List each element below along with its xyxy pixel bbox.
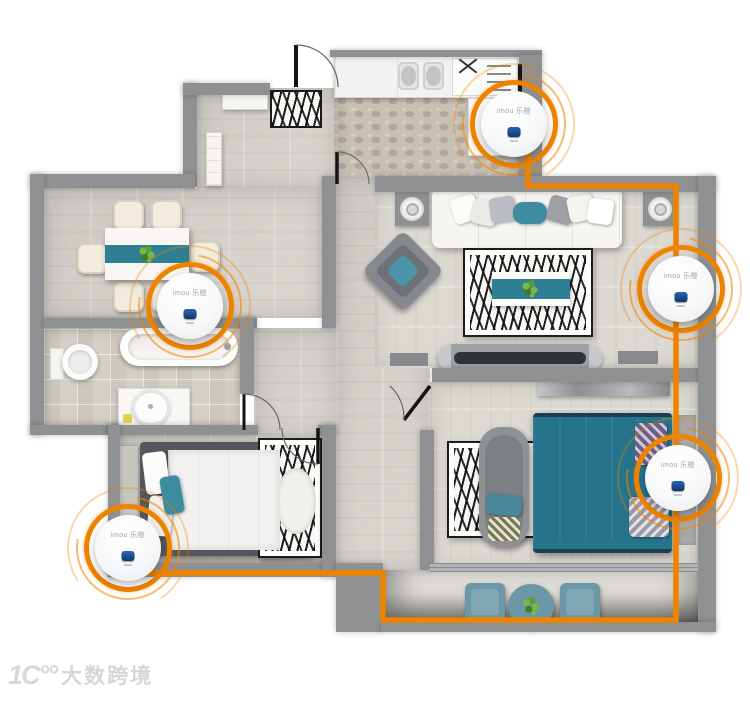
tv-side-shelf-right (618, 351, 658, 364)
dining-chair (113, 200, 144, 231)
wall (375, 176, 716, 192)
device-brand-label: imou 乐橙 (497, 106, 531, 116)
entry-doormat (270, 90, 322, 128)
device-camera-icon (122, 551, 135, 561)
soap-dish (123, 414, 132, 423)
watermark-text: 大数跨境 (61, 664, 153, 689)
device-camera-icon (672, 481, 685, 491)
wall (381, 622, 716, 632)
device-indicator-line (510, 140, 518, 142)
device-indicator-line (674, 494, 682, 496)
wall (322, 425, 336, 577)
device-brand-label: imou 乐橙 (111, 530, 145, 540)
wall (322, 176, 336, 328)
chaise-lounge (479, 427, 529, 547)
camera-device: imou 乐橙 (645, 445, 711, 511)
camera-device: imou 乐橙 (648, 256, 714, 322)
wall (108, 425, 258, 435)
balcony-sliding-door (430, 563, 698, 572)
wall (183, 83, 197, 187)
wall (330, 50, 542, 57)
wall (420, 430, 434, 570)
balcony-plant (520, 595, 542, 617)
wall (30, 174, 195, 188)
camera-device: imou 乐橙 (95, 515, 161, 581)
sofa-pillow (586, 197, 614, 225)
device-brand-label: imou 乐橙 (173, 288, 207, 298)
device-camera-icon (675, 292, 688, 302)
device-indicator-line (677, 305, 685, 307)
dining-chair (151, 200, 182, 231)
kitchen-sink-left (398, 62, 419, 90)
dining-chair (77, 243, 108, 274)
speaker-left (395, 192, 429, 226)
balcony-chair (465, 583, 505, 621)
sofa-pillow-teal (513, 202, 547, 224)
shoe-cabinet (206, 132, 222, 186)
device-brand-label: imou 乐橙 (664, 271, 698, 281)
chaise-blanket (488, 517, 520, 541)
chaise-pillow (485, 493, 523, 517)
tv-side-shelf-left (390, 353, 428, 366)
device-camera-icon (184, 309, 197, 319)
device-brand-label: imou 乐橙 (661, 460, 695, 470)
toilet-bowl (62, 344, 98, 380)
watermark: 1C°° 大数跨境 (8, 662, 153, 689)
camera-device: imou 乐橙 (157, 273, 223, 339)
wall (336, 563, 383, 632)
wall (432, 368, 698, 382)
coffee-table-plant (520, 279, 540, 299)
balcony-chair (560, 583, 600, 621)
device-indicator-line (124, 564, 132, 566)
wall (30, 174, 44, 435)
wall (183, 83, 270, 95)
speaker-right (643, 192, 677, 226)
device-camera-icon (508, 127, 521, 137)
camera-device: imou 乐橙 (481, 91, 547, 157)
coffee-table (492, 272, 570, 306)
device-indicator-line (186, 322, 194, 324)
hall-floor (254, 328, 336, 435)
bathroom-sink (132, 390, 170, 426)
kitchen-sink-right (423, 62, 444, 90)
watermark-logo: 1C°° (8, 662, 56, 689)
entry-bench (222, 94, 268, 110)
bed2-ottoman (276, 468, 316, 534)
floorplan-image: imou 乐橙 imou 乐橙 imou 乐橙 imou 乐橙 (0, 0, 750, 706)
wall (30, 425, 120, 435)
